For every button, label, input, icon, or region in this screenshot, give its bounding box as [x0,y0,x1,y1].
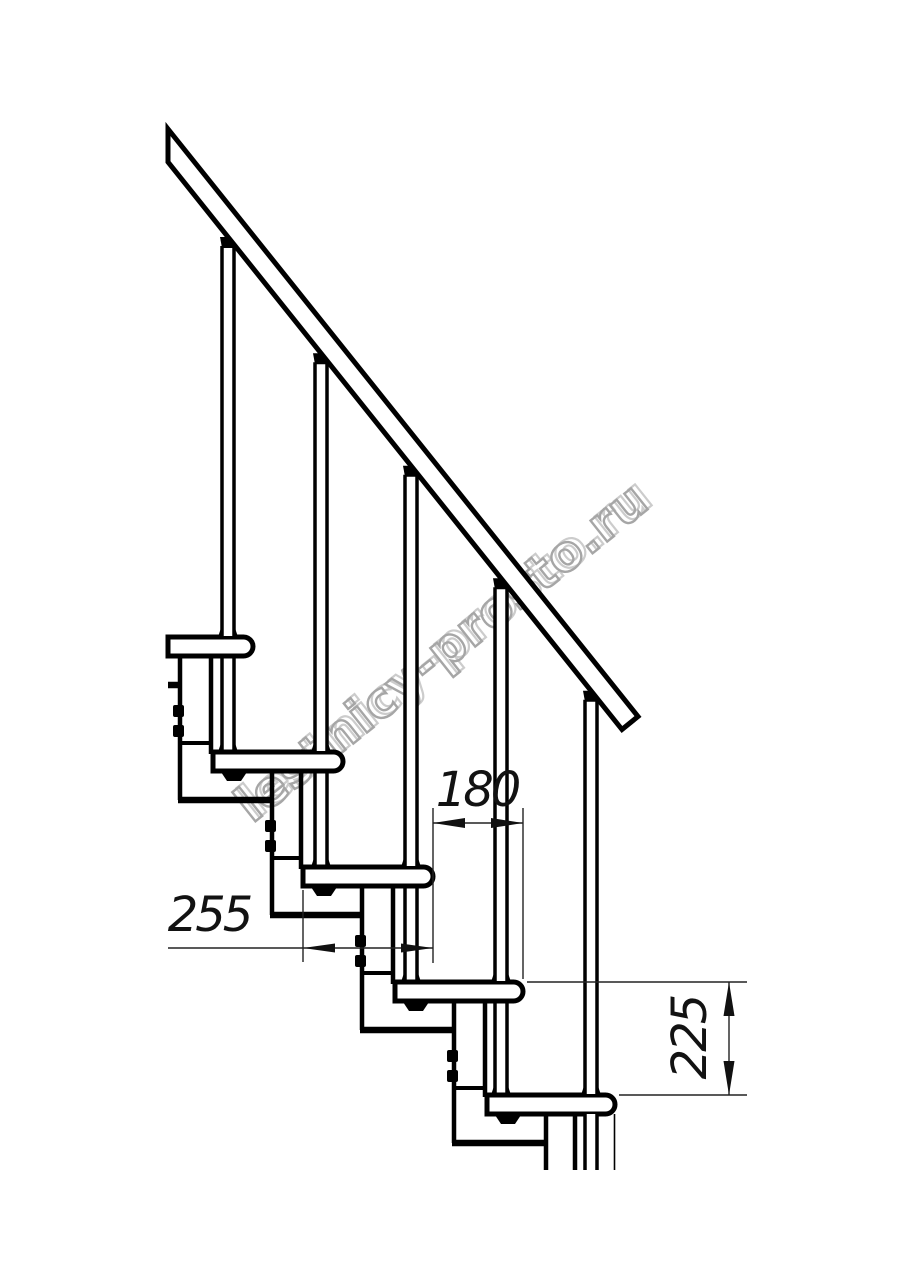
arrow-rise-down [724,1061,735,1095]
tread [168,637,253,656]
support-rod [315,771,327,866]
bottom-cut-structure [546,1114,615,1170]
arrow-depth-left [303,944,335,953]
module-bolt-tab [173,705,184,717]
module-bolt-tab [355,935,366,947]
tread [395,982,523,1001]
tread-fixing-bolt [403,1002,429,1011]
support-rod [405,886,417,981]
baluster-rod [585,700,597,1094]
support-rod [222,656,234,751]
baluster-rod [315,362,327,751]
dimension-label-rise: 225 [662,996,718,1079]
drawing-sheet: lestnicy-prosto.ru lestnicy-prosto.ru [0,0,914,1280]
lower-support-rod [585,1114,597,1170]
module-bolt-tab [265,820,276,832]
module-bolt-tab [173,725,184,737]
baluster-rod [405,475,417,866]
arrow-going-left [433,818,465,828]
module-bolt-tab [447,1070,458,1082]
support-rod [495,1001,507,1094]
module-bolt-tab [355,955,366,967]
tread [303,867,433,886]
baluster-rod [222,246,234,636]
module-bolt-tab [447,1050,458,1062]
module-bolt-tab [265,840,276,852]
staircase-technical-drawing: lestnicy-prosto.ru lestnicy-prosto.ru [0,0,914,1280]
tread-fixing-bolt [495,1115,521,1124]
arrow-rise-up [724,982,735,1016]
dimension-label-going: 180 [436,762,520,818]
tread-fixing-bolt [311,887,337,896]
dimension-label-tread-depth: 255 [168,887,251,943]
tread [213,752,343,771]
tread [487,1095,615,1114]
